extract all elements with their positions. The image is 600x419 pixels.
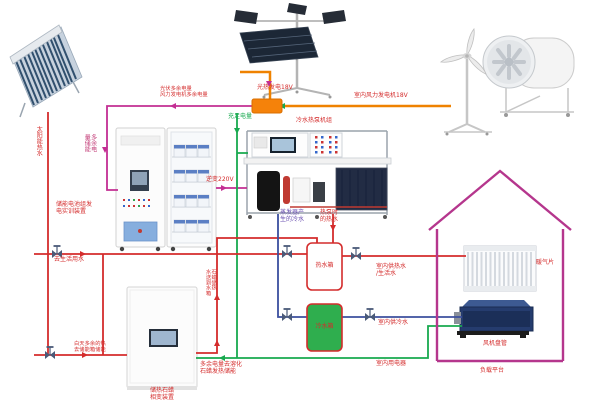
label-hot-tank: 热水箱 — [307, 263, 342, 270]
label-paraffin-device: 储热石蜡 相变装置 — [142, 388, 182, 402]
label-surplus-melt: 多余电量去溶化 石蜡发热储能 — [200, 362, 242, 376]
heat-pump-bench — [244, 131, 391, 219]
label-indoor-appliance: 室内用电器 — [376, 361, 406, 368]
label-pv-surplus: 光伏多余电量 风力发电机多余电量 — [160, 86, 208, 98]
label-heatpump-unit: 冷水热泵机组 — [296, 118, 332, 125]
fan-coil-icon — [454, 300, 533, 338]
label-battery-device: 储能电池组发 电实训装置 — [56, 202, 92, 216]
label-fan-coil: 风机盘管 — [483, 341, 507, 348]
pipe-paraffin-to-tank — [196, 238, 317, 353]
solar-collector-icon — [10, 25, 82, 117]
wind-turbine-icon — [440, 28, 492, 135]
label-radiator: 暖气片 — [536, 260, 554, 267]
axial-fan-icon — [483, 36, 574, 117]
label-surplus-storage: 多余电 量储能 — [83, 134, 96, 152]
label-indoor-cold: 室内供冷水 — [378, 320, 408, 327]
label-solar-hot-water: 太阳能热水 — [35, 126, 41, 156]
hvac-energy-diagram: 太阳能热水 光伏多余电量 风力发电机多余电量 光热发电18V 室内风力发电机18… — [0, 0, 600, 419]
label-wind-generation: 室内风力发电机18V — [354, 93, 408, 100]
label-heatpump-hot: 热泵时 的热水 — [320, 210, 338, 224]
paraffin-storage-cabinet — [127, 287, 197, 390]
label-load-platform: 负载平台 — [480, 368, 504, 375]
label-cold-tank: 冷水箱 — [307, 324, 342, 331]
pipe-evaporator-cold — [278, 214, 307, 317]
label-indoor-hot: 室内供热水 /生活水 — [376, 264, 406, 278]
label-day-surplus-heat: 白天多余的热 去储能箱储能 — [74, 341, 106, 353]
label-to-domestic-water: 去生活用水 — [54, 257, 84, 264]
label-evaporator-cold: 蒸发器产 生的冷水 — [280, 210, 304, 224]
label-paraffin-to-tank: 石蜡储热 水送到水箱 — [204, 269, 215, 296]
battery-storage-cabinets — [116, 128, 216, 251]
label-inverter-220v: 逆变220V — [206, 177, 234, 184]
label-enough-power: 充足电量 — [228, 114, 252, 121]
power-junction-box — [252, 99, 282, 113]
radiator-icon — [464, 246, 536, 291]
label-pv-generation: 光热发电18V — [257, 85, 293, 92]
